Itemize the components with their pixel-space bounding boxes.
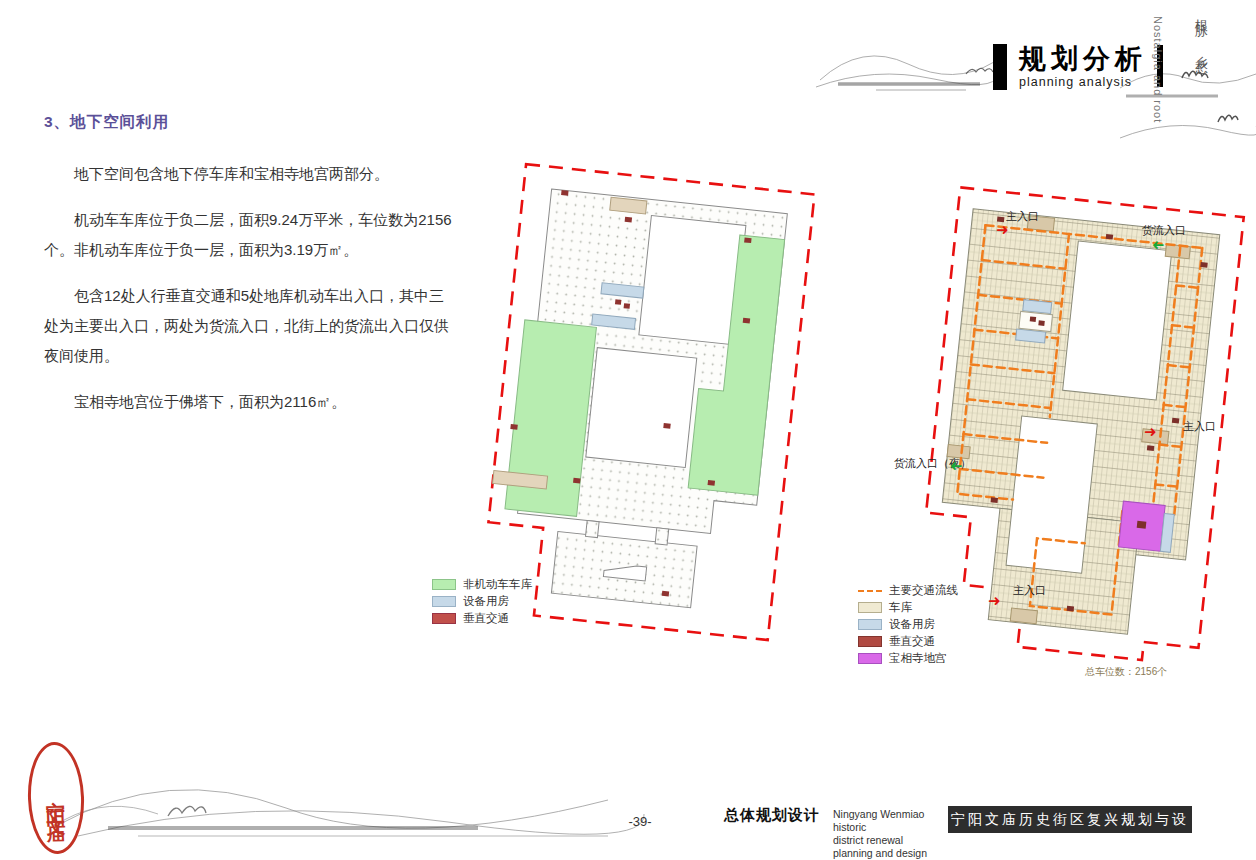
article: 3、地下空间利用 地下空间包含地下停车库和宝相寺地宫两部分。 机动车车库位于负二… xyxy=(44,112,456,433)
doc-title-en-line1: Ningyang Wenmiao historic xyxy=(833,808,945,834)
page-number: -39- xyxy=(600,814,680,829)
doc-title-en: Ningyang Wenmiao historic district renew… xyxy=(833,808,945,860)
legend-swatch-blue xyxy=(432,596,456,607)
legend-swatch-magenta xyxy=(858,653,882,664)
legend-label: 垂直交通 xyxy=(463,611,509,626)
legend-label: 垂直交通 xyxy=(889,634,935,649)
legend-label: 车库 xyxy=(889,600,912,615)
right-map-legend: 主要交通流线 车库 设备用房 垂直交通 宝相寺地宫 xyxy=(858,582,958,667)
legend-item: 主要交通流线 xyxy=(858,582,958,599)
label-main-entrance-right: 主入口 xyxy=(1183,419,1216,434)
legend-label: 非机动车车库 xyxy=(463,577,532,592)
legend-item: 垂直交通 xyxy=(858,633,958,650)
legend-swatch-blue xyxy=(858,619,882,630)
title-block-square xyxy=(993,44,1007,90)
left-map-legend: 非机动车车库 设备用房 垂直交通 xyxy=(432,576,532,627)
arrow-freight-entrance-left: ➜ xyxy=(950,458,963,473)
footer-banner: 宁阳文庙历史街区复兴规划与设计 xyxy=(948,806,1192,833)
section-heading: 3、地下空间利用 xyxy=(44,112,456,133)
paragraph: 包含12处人行垂直交通和5处地库机动车出入口，其中三处为主要出入口，两处为货流入… xyxy=(44,281,456,371)
legend-label: 设备用房 xyxy=(889,617,935,632)
ink-mountains-bottom xyxy=(48,756,648,852)
legend-item: 设备用房 xyxy=(858,616,958,633)
legend-swatch-red xyxy=(432,613,456,624)
capacity-note: 总车位数：2156个 xyxy=(1085,665,1167,679)
ink-mountains-header xyxy=(816,32,998,104)
legend-label: 主要交通流线 xyxy=(889,583,958,598)
document-page: 规划分析 planning analysis 根脉 · 乡愁 Nostalgia… xyxy=(0,0,1256,860)
corner-motto-en: Nostalgia and root xyxy=(1152,16,1164,123)
arrow-main-entrance-right: ➜ xyxy=(1144,424,1157,439)
section-title-cn: 规划分析 xyxy=(1019,44,1147,74)
doc-title-en-line2: district renewal planning and design xyxy=(833,834,945,860)
legend-swatch-traffic-line xyxy=(858,590,882,592)
arrow-main-entrance-bottom: ➜ xyxy=(988,593,1001,608)
paragraph: 宝相寺地宫位于佛塔下，面积为2116㎡。 xyxy=(44,387,456,417)
label-main-entrance-bottom: 主入口 xyxy=(1013,583,1046,598)
paragraph: 地下空间包含地下停车库和宝相寺地宫两部分。 xyxy=(44,159,456,189)
legend-swatch-green xyxy=(432,579,456,590)
legend-item: 设备用房 xyxy=(432,593,532,610)
legend-label: 设备用房 xyxy=(463,594,509,609)
legend-item: 车库 xyxy=(858,599,958,616)
legend-item: 宝相寺地宫 xyxy=(858,650,958,667)
doc-title-cn: 总体规划设计 xyxy=(724,806,820,825)
paragraph: 机动车车库位于负二层，面积9.24万平米，车位数为2156个。非机动车库位于负一… xyxy=(44,205,456,265)
legend-label: 宝相寺地宫 xyxy=(889,651,947,666)
section-title-en: planning analysis xyxy=(1019,75,1147,89)
arrow-freight-entrance-top: ➜ xyxy=(1152,237,1165,252)
page-section-header: 规划分析 planning analysis xyxy=(993,44,1163,90)
legend-item: 垂直交通 xyxy=(432,610,532,627)
arrow-main-entrance-top: ➜ xyxy=(996,222,1009,237)
corner-motto-cn: 根脉 · 乡愁 xyxy=(1192,8,1210,55)
legend-swatch-darkred xyxy=(858,636,882,647)
nyang-wenmiao-seal: 宁阳文庙 xyxy=(26,741,86,855)
legend-swatch-cream xyxy=(858,602,882,613)
legend-item: 非机动车车库 xyxy=(432,576,532,593)
label-main-entrance-top: 主入口 xyxy=(1006,209,1039,224)
